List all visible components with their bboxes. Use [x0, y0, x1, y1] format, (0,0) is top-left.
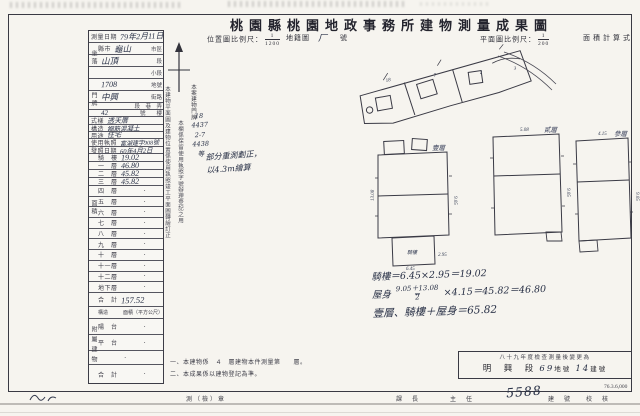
- floor-plan-1-annex-label: 騎樓: [407, 249, 418, 256]
- survey-table: 測量日期79年2月11日 縣市龜山市區 山頂段 小段 1708地號 中興街路 段…: [88, 30, 164, 384]
- handwritten-calculations: 騎樓＝6.45×2.95＝19.02 屋身 9.05＋13.082 ×4.15＝…: [371, 263, 547, 325]
- table-row: 測量日期79年2月11日: [89, 31, 163, 43]
- renumber-box: 八十九年度檢查測量後變更為 明 興 段 69地號 14建號: [458, 351, 632, 379]
- floor-plan-1-label: 壹層: [432, 144, 447, 152]
- renumber-value: 明 興 段 69地號 14建號: [459, 362, 631, 374]
- plan-scale-label: 平面圖比例尺：: [480, 35, 536, 43]
- floor-plan-1: 壹層 騎樓 13.08 9.05 6.45 2.95: [370, 138, 460, 270]
- handwritten-sketch-note: 部分重測劃正， 以4.3m繪算: [205, 148, 263, 177]
- svg-text:9.05: 9.05: [634, 192, 639, 201]
- floor-plan-3-label: 參層: [614, 130, 629, 138]
- footer-director-label: 主 任: [450, 394, 474, 403]
- location-scale: 位置圖比例尺：11200: [207, 33, 282, 47]
- table-row-annex-header: 構造面積（平方公尺）: [89, 307, 163, 319]
- table-row: 五 層·: [89, 197, 163, 208]
- table-row: 合 計·: [89, 365, 163, 383]
- scanned-survey-form: { "page": { "title": "桃園縣桃園地政事務所建物測量成果圖"…: [0, 0, 640, 416]
- cadastral-suffix: 號: [340, 33, 348, 43]
- table-row: 十一層·: [89, 261, 163, 272]
- floor-plan-2-label: 貳層: [544, 126, 559, 134]
- vertical-note-reserved: 本欄係保留使用執照字號辦理登記之用: [177, 120, 183, 285]
- scan-smudge-top-middle: [228, 1, 408, 7]
- table-row-total: 合 計157.52: [89, 293, 163, 307]
- handwritten-number: 5588: [505, 382, 542, 400]
- table-row: 1708地號: [89, 79, 163, 91]
- table-row: 平 台·: [89, 335, 163, 351]
- spine-door-label: 門牌: [89, 92, 98, 108]
- location-scale-fraction: 11200: [265, 33, 280, 47]
- table-row: 一 層46.80: [89, 162, 163, 170]
- cadastral-label: 地籍圖: [286, 33, 310, 43]
- table-row: 七 層·: [89, 218, 163, 229]
- printed-note-2: 二、本成果係以建物登記為準。: [170, 369, 261, 378]
- table-row: 二 層45.82: [89, 170, 163, 178]
- footer-seal-label: 測（檢）章: [186, 394, 226, 403]
- renumber-note: 八十九年度檢查測量後變更為: [459, 353, 631, 361]
- table-row: 小段: [89, 67, 163, 79]
- print-code: 76.3.6,000: [604, 384, 627, 390]
- table-row: ·: [89, 351, 163, 365]
- table-row: 用途住宅: [89, 132, 163, 139]
- svg-text:2.95: 2.95: [438, 253, 447, 258]
- section-name: 明 興 段: [483, 363, 536, 373]
- cadastral-handwritten: 厂: [318, 31, 328, 44]
- svg-text:4.15: 4.15: [598, 132, 607, 137]
- table-row: 段 巷 弄: [89, 103, 163, 110]
- svg-text:3: 3: [513, 66, 517, 72]
- footer-check-label: 校 核: [586, 394, 610, 403]
- table-row: 地下層·: [89, 282, 163, 293]
- table-row: 陽 台·: [89, 319, 163, 335]
- spine-site-label: 坐落: [89, 50, 98, 66]
- table-row: 式樣透天厝: [89, 117, 163, 125]
- printed-note-1: 一、本建物係 ４ 層建物本件測量第 層。: [170, 357, 307, 366]
- table-row: 六 層·: [89, 207, 163, 218]
- form-title: 桃園縣桃園地政事務所建物測量成果圖: [230, 15, 630, 34]
- vertical-note-transcription: 本建物平面圖及建物位置係使用執照竣工平面圖轉繪訂正: [164, 86, 170, 276]
- svg-text:5.08: 5.08: [520, 128, 529, 133]
- spine-area-label: 面積: [89, 200, 98, 216]
- table-row: 構造鋼筋混凝土: [89, 125, 163, 132]
- table-row: 四 層·: [89, 186, 163, 197]
- scan-shadow-line: [0, 403, 640, 405]
- table-row: 十 層·: [89, 250, 163, 261]
- scan-smudge-top-left: [10, 2, 182, 8]
- svg-text:18: 18: [385, 78, 391, 84]
- table-row: 發照日期60年4月2日: [89, 147, 163, 154]
- floor-plan-3: 參層 4.15 9.05: [570, 132, 638, 256]
- table-row: 山頂段: [89, 55, 163, 67]
- scan-smudge-top-right: [420, 2, 490, 6]
- table-row: 十二層·: [89, 272, 163, 283]
- table-row: 42號 樓: [89, 110, 163, 117]
- footer-chief-label: 課 長: [396, 394, 420, 403]
- table-row: 縣市龜山市區: [89, 43, 163, 55]
- spine-annex-label: 附屬建物: [89, 326, 98, 366]
- footer-building-no-label: 建 號: [548, 394, 572, 403]
- table-row: 八 層·: [89, 229, 163, 240]
- area-calc-header: 面積計算式: [583, 33, 633, 43]
- svg-text:13.08: 13.08: [371, 189, 376, 201]
- floor-plan-2: 貳層 5.08 9.05: [486, 128, 570, 246]
- lot-number: 69: [539, 364, 554, 374]
- building-number: 14: [575, 364, 590, 374]
- table-row: 九 層·: [89, 239, 163, 250]
- svg-text:9.05: 9.05: [452, 196, 457, 205]
- table-row: 騎 樓19.02: [89, 154, 163, 162]
- table-row: 三 層45.82: [89, 178, 163, 186]
- table-row: 中興街路: [89, 91, 163, 103]
- location-scale-label: 位置圖比例尺：: [207, 35, 263, 43]
- svg-text:2: 2: [479, 70, 483, 76]
- table-row: 使用執照富湖建字908號: [89, 139, 163, 147]
- location-sketch: 18 7 2 3: [348, 44, 553, 140]
- scan-shadow-line-2: [0, 412, 640, 413]
